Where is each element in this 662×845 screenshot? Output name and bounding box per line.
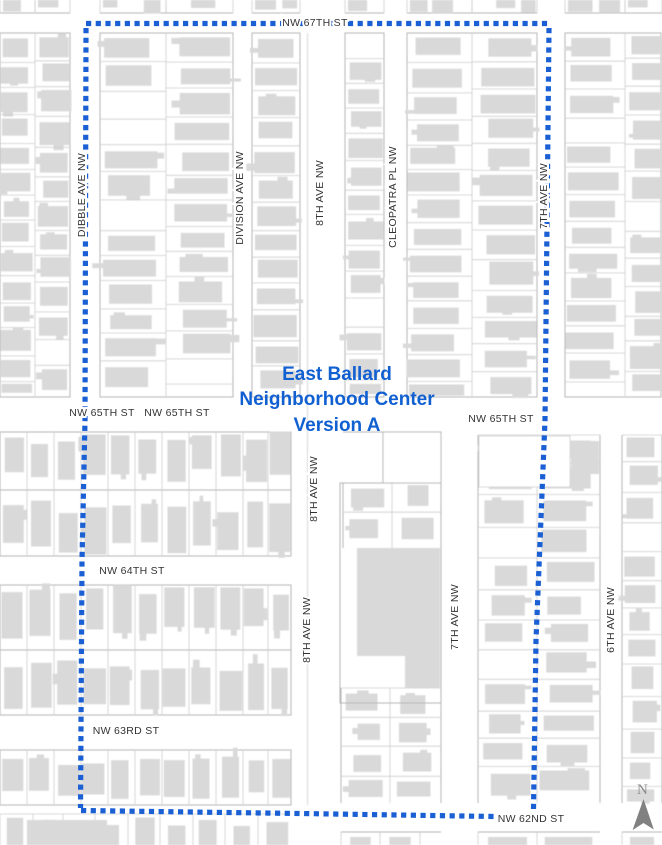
svg-text:NW 65TH ST: NW 65TH ST <box>144 407 210 419</box>
svg-text:6TH AVE NW: 6TH AVE NW <box>605 587 617 653</box>
svg-text:7TH AVE NW: 7TH AVE NW <box>538 163 550 229</box>
svg-text:Version A: Version A <box>294 415 381 436</box>
svg-text:Neighborhood Center: Neighborhood Center <box>239 389 435 410</box>
svg-text:NW 67TH ST: NW 67TH ST <box>282 17 348 29</box>
svg-text:NW 65TH ST: NW 65TH ST <box>69 407 135 419</box>
svg-text:DIVISION AVE NW: DIVISION AVE NW <box>234 151 246 245</box>
svg-text:NW 65TH ST: NW 65TH ST <box>468 413 534 425</box>
svg-text:8TH AVE NW: 8TH AVE NW <box>308 456 320 522</box>
svg-text:7TH AVE NW: 7TH AVE NW <box>449 584 461 650</box>
svg-text:N: N <box>637 782 648 798</box>
svg-text:NW 62ND ST: NW 62ND ST <box>498 813 565 825</box>
svg-text:8TH AVE NW: 8TH AVE NW <box>314 160 326 226</box>
svg-text:NW 64TH ST: NW 64TH ST <box>99 565 165 577</box>
svg-text:DIBBLE AVE NW: DIBBLE AVE NW <box>76 153 88 237</box>
svg-text:8TH AVE NW: 8TH AVE NW <box>301 597 313 663</box>
svg-text:CLEOPATRA PL NW: CLEOPATRA PL NW <box>387 146 399 248</box>
svg-text:East Ballard: East Ballard <box>282 364 392 385</box>
svg-text:NW 63RD ST: NW 63RD ST <box>93 725 160 737</box>
